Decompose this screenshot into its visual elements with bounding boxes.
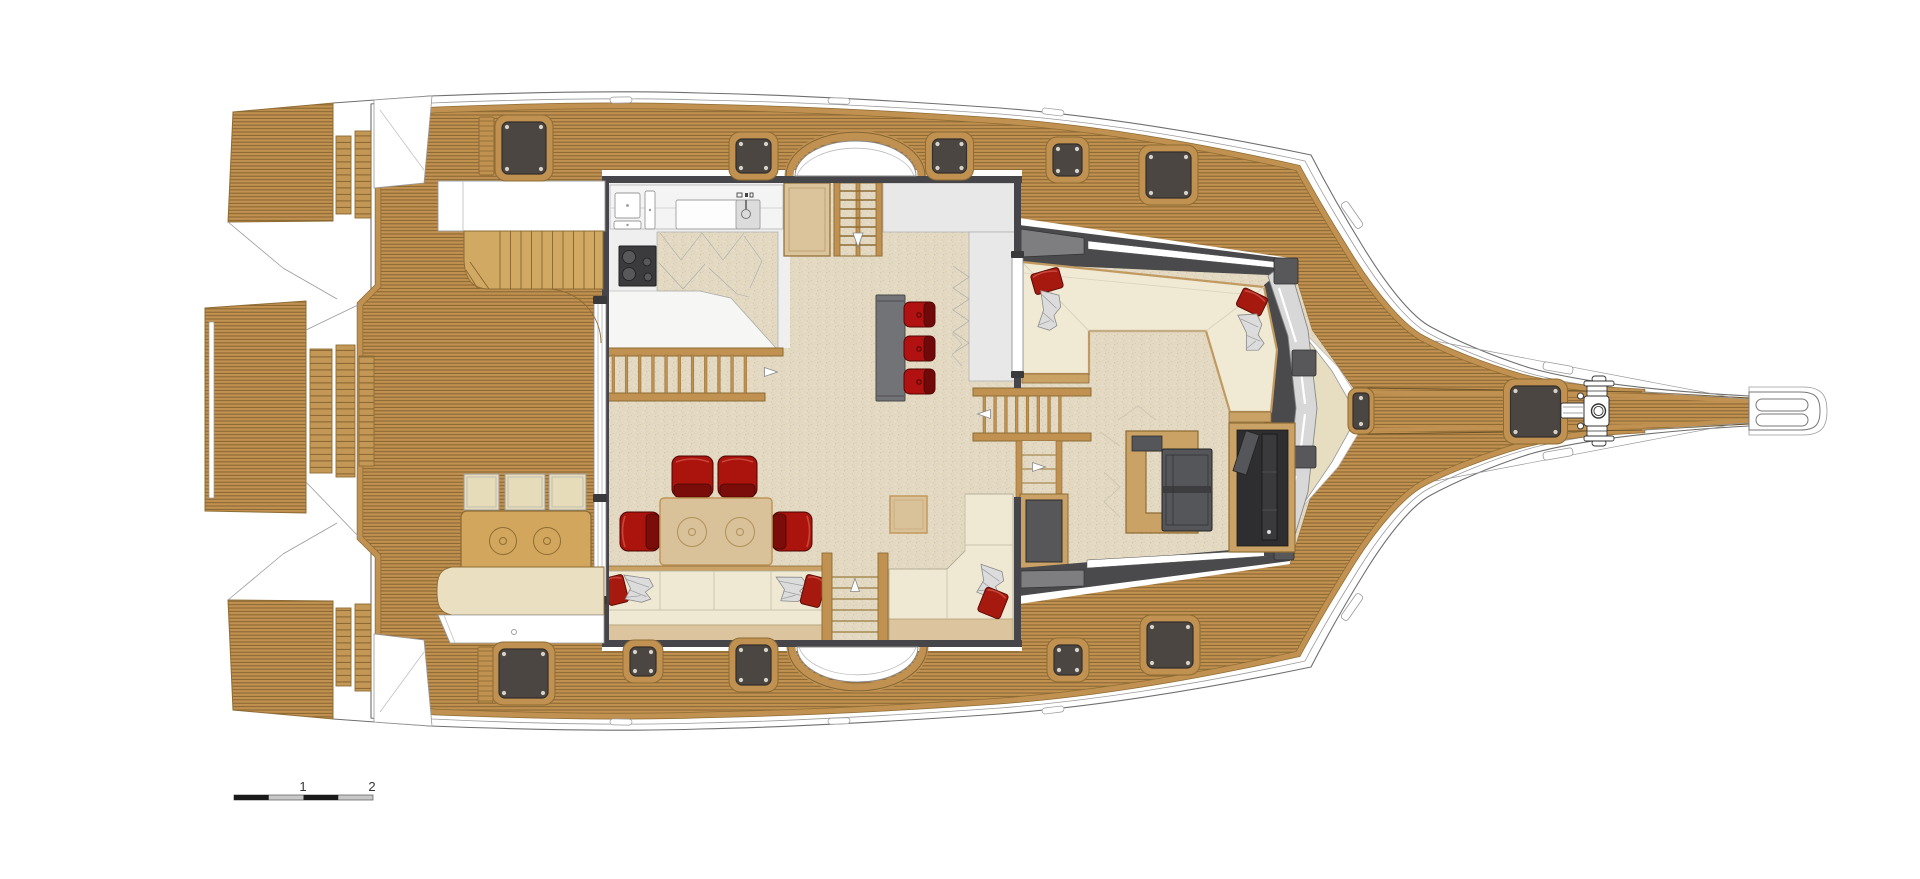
svg-text:1: 1 [299,779,306,794]
svg-text:2: 2 [368,779,375,794]
